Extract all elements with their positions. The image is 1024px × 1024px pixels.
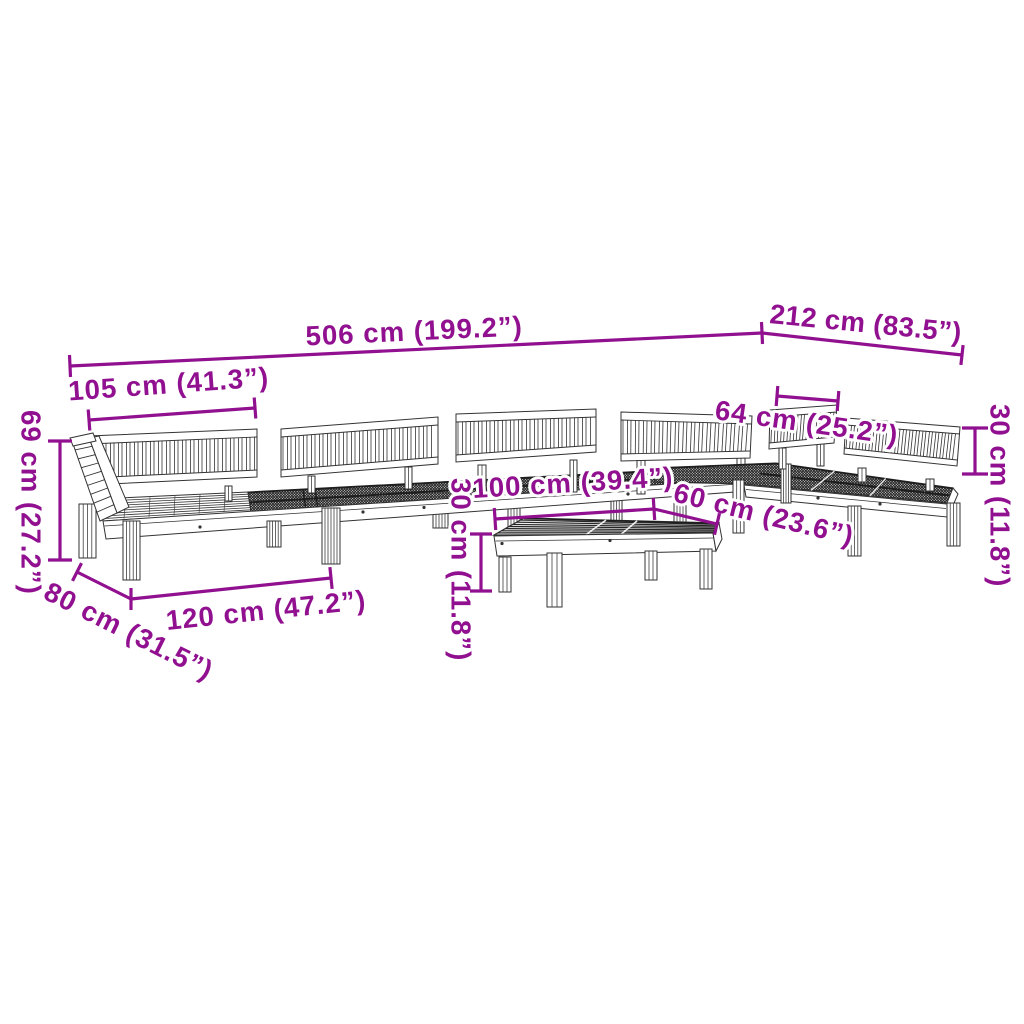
svg-text:30 cm (11.8”): 30 cm (11.8”) [446,478,477,661]
svg-text:30 cm (11.8”): 30 cm (11.8”) [985,404,1016,587]
svg-text:69 cm (27.2”): 69 cm (27.2”) [16,410,47,595]
